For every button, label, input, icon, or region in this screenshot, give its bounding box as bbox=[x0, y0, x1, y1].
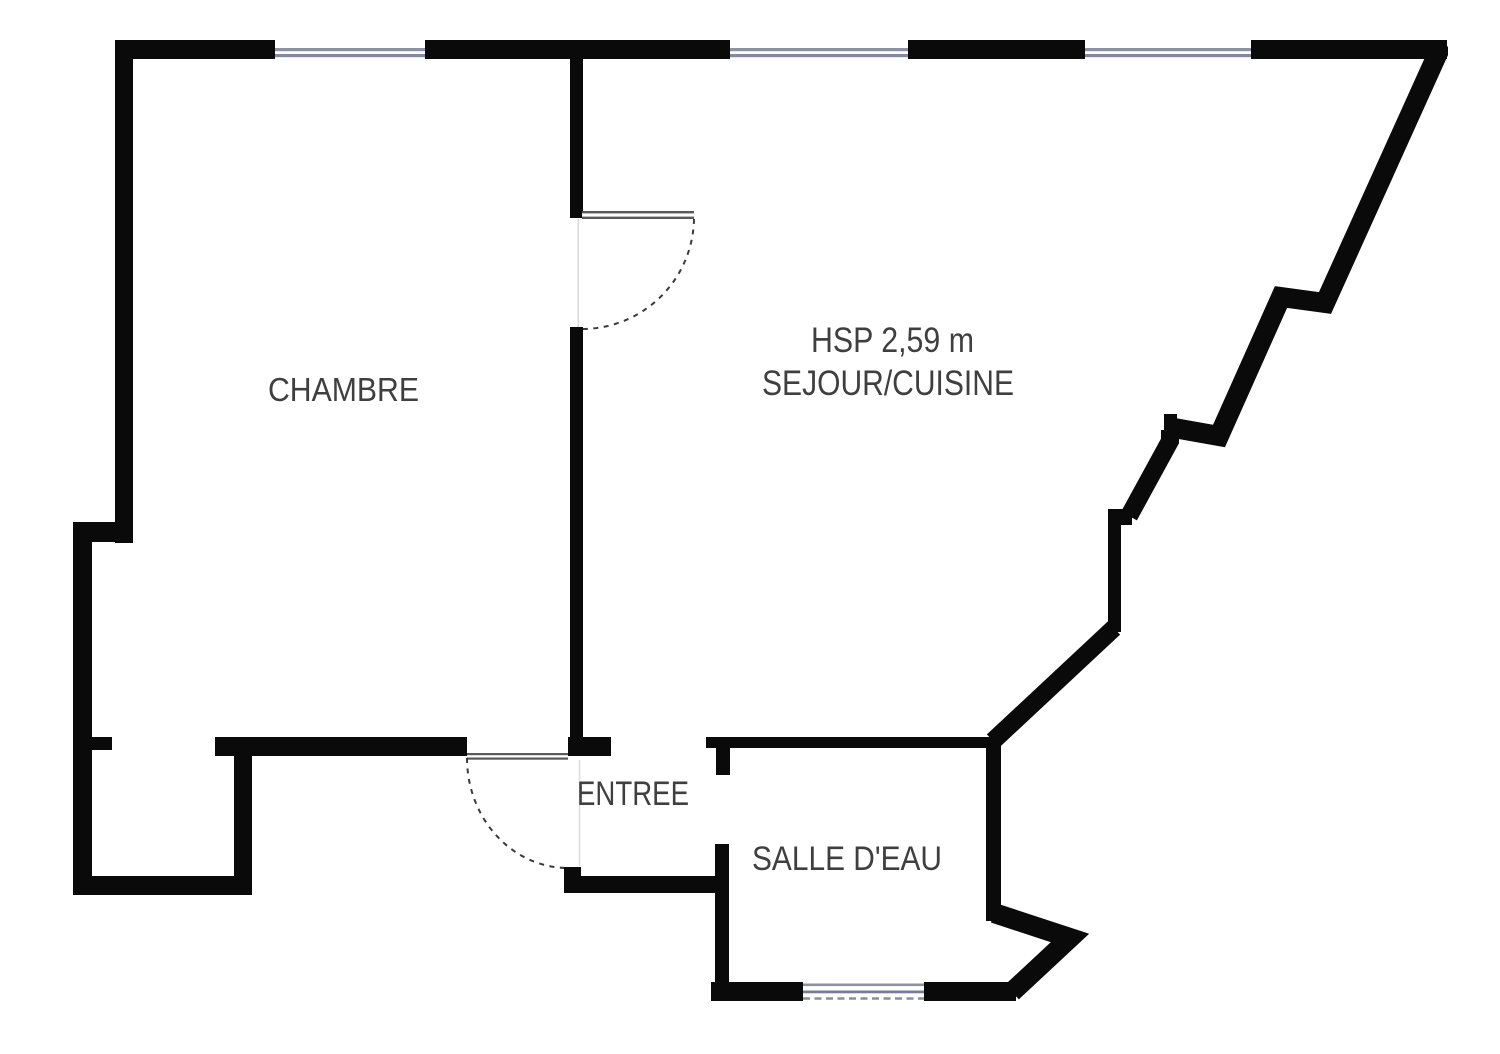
svg-text:CHAMBRE: CHAMBRE bbox=[268, 371, 419, 408]
svg-text:SALLE D'EAU: SALLE D'EAU bbox=[752, 840, 942, 878]
svg-text:ENTREE: ENTREE bbox=[577, 775, 689, 813]
svg-text:SEJOUR/CUISINE: SEJOUR/CUISINE bbox=[762, 364, 1014, 403]
svg-text:HSP 2,59 m: HSP 2,59 m bbox=[811, 321, 974, 360]
